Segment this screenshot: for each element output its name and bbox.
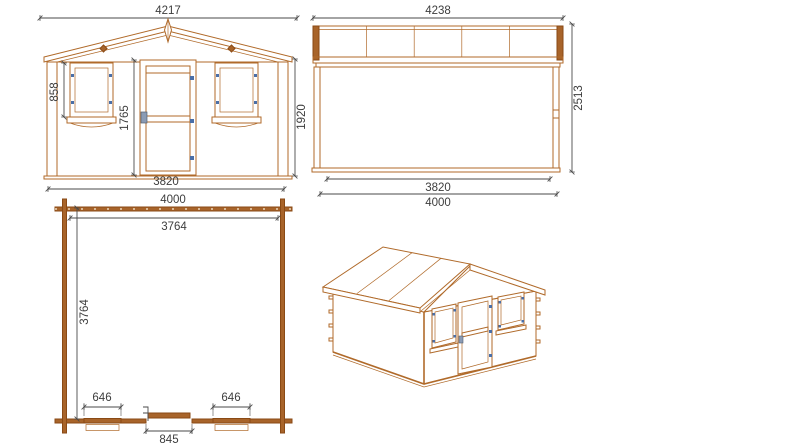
eave-board — [313, 57, 563, 63]
hinge-dot — [254, 74, 257, 77]
side-log-wall — [320, 67, 553, 168]
corner-logs-left — [314, 67, 320, 170]
dim-left-window-width: 646 — [92, 392, 111, 404]
log-end — [536, 298, 540, 301]
dim-inner-depth: 3764 — [79, 299, 91, 325]
door-hinge — [190, 76, 194, 80]
hinge-dot — [109, 74, 112, 77]
dim-roof-width: 4217 — [155, 5, 181, 17]
corner-logs-left — [47, 62, 57, 177]
iso-base-line — [333, 352, 536, 384]
wall-knob — [553, 110, 559, 118]
hinge-dot — [522, 297, 525, 300]
hinge-dot — [71, 101, 74, 104]
door-hinge — [190, 156, 194, 160]
log-end — [536, 312, 540, 315]
hinge-dot — [71, 74, 74, 77]
dim-outer-width: 4000 — [160, 194, 186, 206]
log-end — [329, 310, 333, 313]
iso-window-left — [430, 304, 458, 353]
door-handle — [141, 112, 147, 123]
roof-plane — [319, 26, 557, 57]
hinge-dot — [522, 320, 525, 323]
plan-wall-bottom — [55, 419, 84, 423]
dim-window-height: 858 — [49, 82, 61, 101]
iso-window-right — [496, 292, 526, 335]
floor-plan-view: 4000 3764 3764 646 646 — [55, 194, 292, 446]
perspective-view — [323, 247, 545, 387]
front-window-left — [67, 63, 116, 127]
front-elevation-view: 4217 — [40, 5, 308, 189]
dim-wall-length: 3820 — [425, 182, 451, 194]
dim-door-width: 845 — [159, 434, 178, 446]
log-end — [329, 296, 333, 299]
dim-roof-length: 4238 — [425, 5, 451, 17]
plan-door-leaf — [148, 413, 190, 418]
plan-window-left — [84, 419, 121, 424]
log-end — [536, 340, 540, 343]
window-apron — [70, 123, 113, 127]
hinge-dot — [454, 309, 457, 312]
log-end — [329, 324, 333, 327]
dim-base-length: 4000 — [425, 197, 451, 209]
front-door — [140, 60, 196, 175]
drawing-svg: 4217 — [0, 0, 794, 446]
base-plinth — [312, 168, 560, 172]
barge-board-right — [557, 26, 563, 60]
hinge-dot — [216, 101, 219, 104]
iso-foundation-line — [333, 355, 536, 387]
hinge-dot — [254, 101, 257, 104]
door-handle — [459, 336, 463, 343]
door-hinge — [489, 354, 492, 357]
dim-door-height: 1765 — [119, 105, 131, 131]
plan-window-left-sill — [86, 425, 119, 431]
hinge-dot — [109, 101, 112, 104]
barge-board-left — [313, 26, 319, 60]
plan-window-right — [213, 419, 250, 424]
hinge-dot — [433, 313, 436, 316]
plan-wall-right — [281, 199, 285, 433]
technical-drawing-sheet: 4217 — [0, 0, 794, 446]
side-elevation-view: 4238 2513 3820 4000 — [312, 5, 585, 209]
door-hinge — [190, 119, 194, 123]
plan-wall-bottom — [121, 419, 146, 423]
dim-inner-width: 3764 — [161, 221, 187, 233]
door-hinge — [489, 330, 492, 333]
dim-total-height: 2513 — [573, 85, 585, 111]
window-sill — [67, 117, 116, 123]
plan-wall-bottom — [250, 419, 292, 423]
iso-door — [458, 296, 492, 374]
eave-trim — [316, 63, 560, 67]
window-apron — [215, 123, 258, 127]
hinge-dot — [499, 325, 502, 328]
log-end — [329, 338, 333, 341]
dim-wall-width: 3820 — [153, 176, 179, 188]
plan-wall-bottom — [192, 419, 213, 423]
dim-wall-height: 1920 — [296, 104, 308, 130]
window-sill — [212, 117, 261, 123]
hinge-dot — [499, 301, 502, 304]
dim-right-window-width: 646 — [221, 392, 240, 404]
hinge-dot — [433, 340, 436, 343]
plan-window-right-sill — [215, 425, 248, 431]
front-window-right — [212, 63, 261, 127]
corner-logs-right — [278, 62, 288, 177]
plan-wall-left — [63, 199, 67, 433]
hinge-dot — [454, 335, 457, 338]
hinge-dot — [216, 74, 219, 77]
log-end — [536, 326, 540, 329]
door-hinge — [489, 305, 492, 308]
